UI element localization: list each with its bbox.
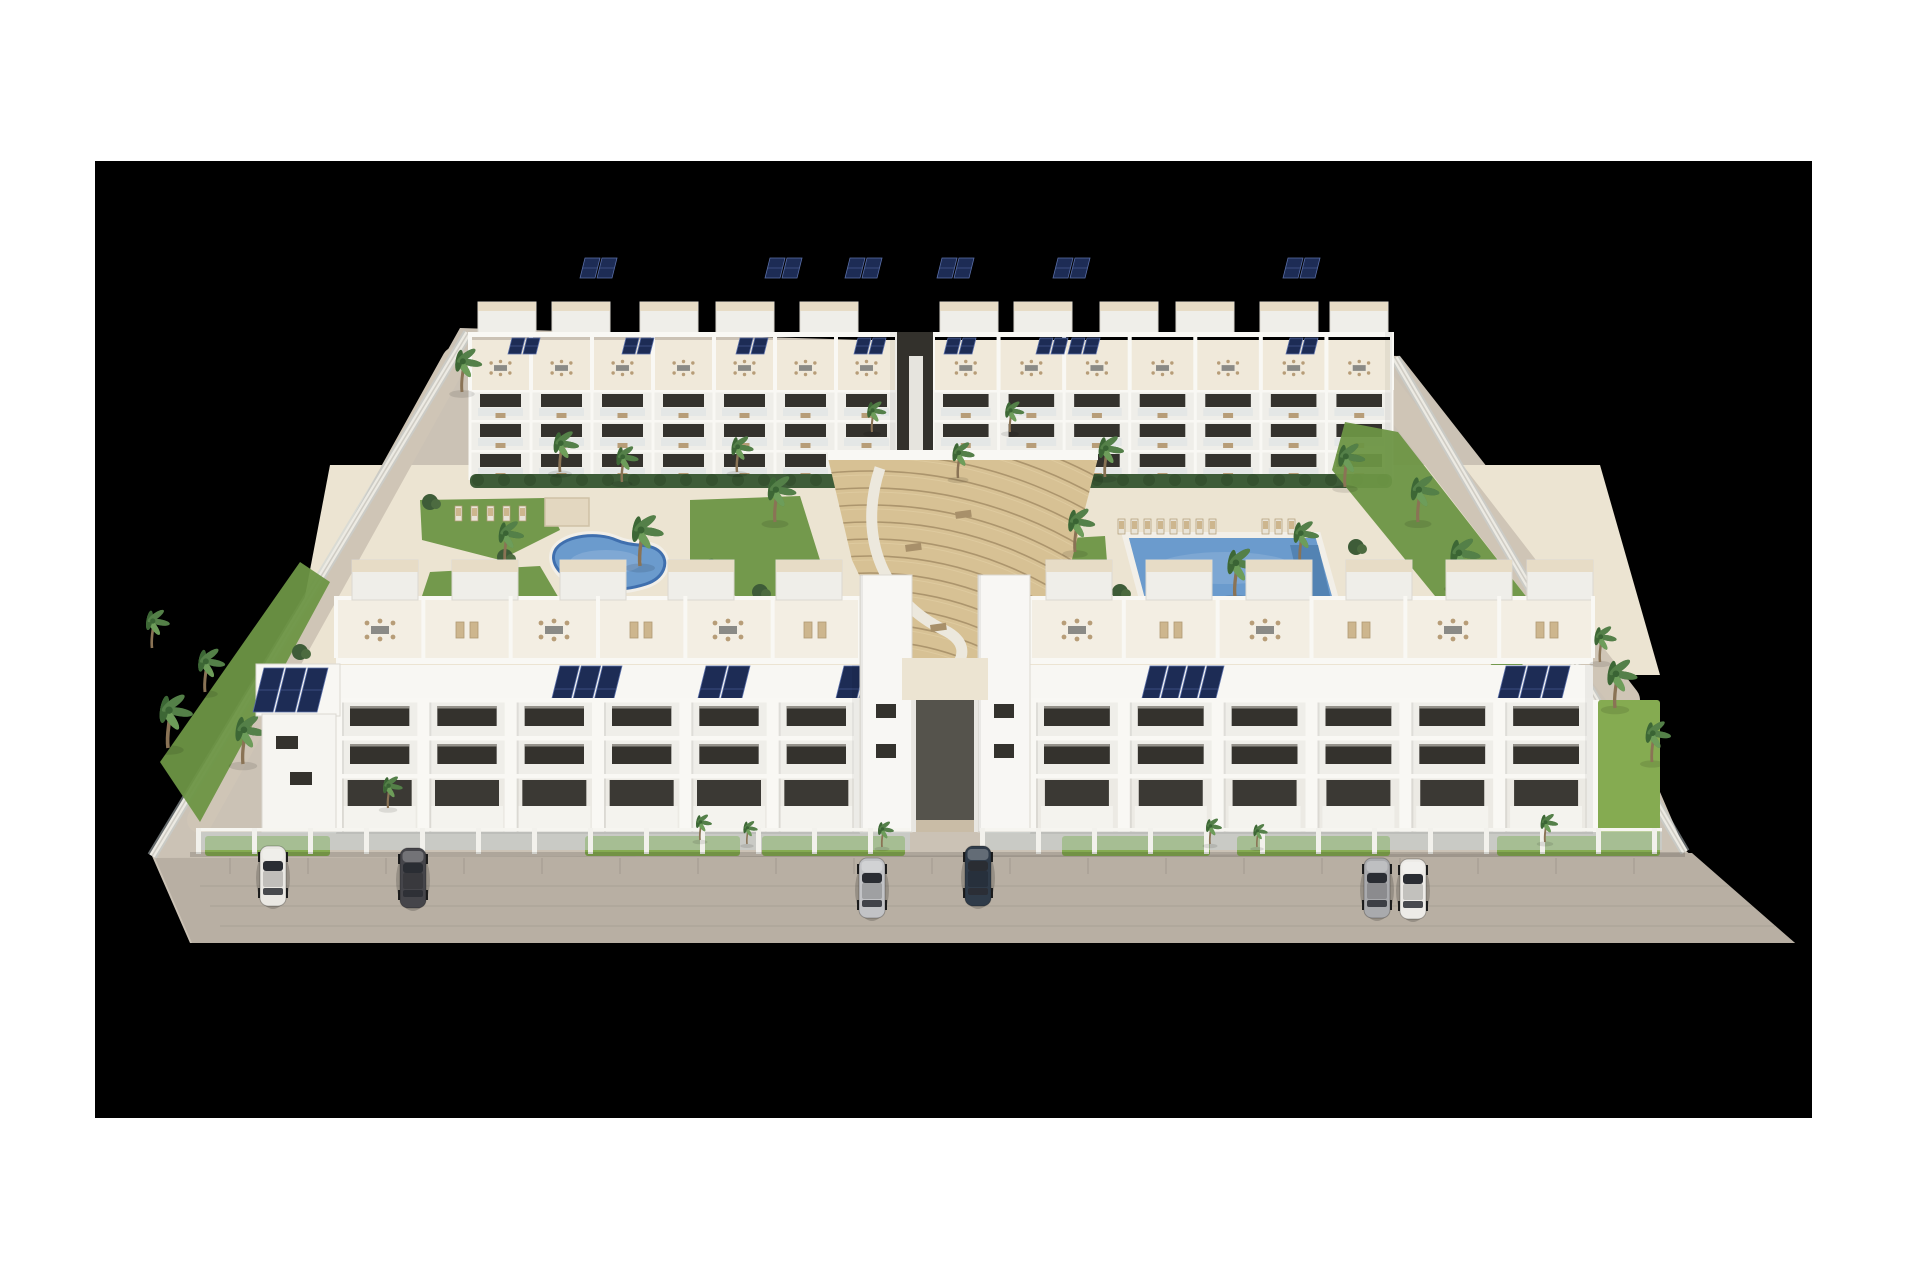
window bbox=[480, 394, 521, 407]
window bbox=[663, 394, 704, 407]
window bbox=[1513, 744, 1579, 764]
window bbox=[1205, 424, 1251, 437]
window bbox=[1138, 744, 1204, 764]
patio-opening bbox=[1233, 780, 1297, 806]
parked-car bbox=[256, 846, 290, 909]
front-lawn bbox=[1598, 700, 1660, 846]
window bbox=[1419, 744, 1485, 764]
central-alley bbox=[902, 658, 988, 832]
window bbox=[724, 394, 765, 407]
parked-car bbox=[396, 848, 430, 911]
window bbox=[1326, 744, 1392, 764]
patio-opening bbox=[1326, 780, 1390, 806]
sun-loungers bbox=[1262, 519, 1295, 534]
window bbox=[1336, 394, 1382, 407]
parked-car bbox=[855, 858, 889, 921]
window bbox=[612, 706, 671, 726]
screenshot-page bbox=[0, 0, 1920, 1280]
patio-opening bbox=[784, 780, 848, 806]
window bbox=[663, 454, 704, 467]
window bbox=[541, 424, 582, 437]
window bbox=[787, 706, 846, 726]
window bbox=[1074, 424, 1120, 437]
patio-opening bbox=[435, 780, 499, 806]
window bbox=[602, 424, 643, 437]
parked-car bbox=[1360, 858, 1394, 921]
patio-opening bbox=[1139, 780, 1203, 806]
street-cars bbox=[396, 848, 430, 911]
window bbox=[724, 424, 765, 437]
patio-opening bbox=[1514, 780, 1578, 806]
street-cars bbox=[961, 846, 995, 909]
parked-car bbox=[961, 846, 995, 909]
front-building-right bbox=[974, 560, 1601, 834]
window bbox=[437, 706, 496, 726]
window bbox=[612, 744, 671, 764]
window bbox=[1140, 424, 1186, 437]
window bbox=[785, 394, 826, 407]
window bbox=[480, 424, 521, 437]
street-cars bbox=[256, 846, 290, 909]
architectural-render bbox=[0, 0, 1920, 1280]
window bbox=[1140, 454, 1186, 467]
window bbox=[1232, 706, 1298, 726]
window bbox=[785, 454, 826, 467]
window bbox=[1419, 706, 1485, 726]
window bbox=[1326, 706, 1392, 726]
street-cars bbox=[855, 858, 889, 921]
stair-tower bbox=[860, 575, 912, 832]
window bbox=[525, 744, 584, 764]
window bbox=[1044, 706, 1110, 726]
window bbox=[1205, 454, 1251, 467]
window bbox=[846, 394, 887, 407]
solar-panel-array bbox=[253, 668, 328, 712]
street-cars bbox=[1396, 859, 1430, 922]
window bbox=[724, 454, 765, 467]
window bbox=[1271, 454, 1317, 467]
patio-opening bbox=[1045, 780, 1109, 806]
window bbox=[943, 424, 989, 437]
parked-car bbox=[1396, 859, 1430, 922]
window bbox=[663, 424, 704, 437]
window bbox=[480, 454, 521, 467]
window bbox=[1205, 394, 1251, 407]
window bbox=[437, 744, 496, 764]
window bbox=[1140, 394, 1186, 407]
patio-opening bbox=[522, 780, 586, 806]
window bbox=[602, 394, 643, 407]
patio-opening bbox=[348, 780, 412, 806]
front-building-left bbox=[330, 560, 912, 834]
window bbox=[525, 706, 584, 726]
window bbox=[785, 424, 826, 437]
stair-tower bbox=[978, 575, 1030, 832]
window bbox=[699, 744, 758, 764]
window bbox=[1138, 706, 1204, 726]
window bbox=[1232, 744, 1298, 764]
patio-opening bbox=[1420, 780, 1484, 806]
window bbox=[1271, 424, 1317, 437]
window bbox=[1074, 394, 1120, 407]
window bbox=[787, 744, 846, 764]
window bbox=[943, 394, 989, 407]
low-roof-block bbox=[253, 664, 340, 832]
patio-opening bbox=[697, 780, 761, 806]
window bbox=[1513, 706, 1579, 726]
window bbox=[1271, 394, 1317, 407]
pergola bbox=[545, 498, 589, 526]
patio-opening bbox=[610, 780, 674, 806]
window bbox=[350, 744, 409, 764]
street-cars bbox=[1360, 858, 1394, 921]
window bbox=[1044, 744, 1110, 764]
window bbox=[699, 706, 758, 726]
window bbox=[350, 706, 409, 726]
window bbox=[541, 394, 582, 407]
